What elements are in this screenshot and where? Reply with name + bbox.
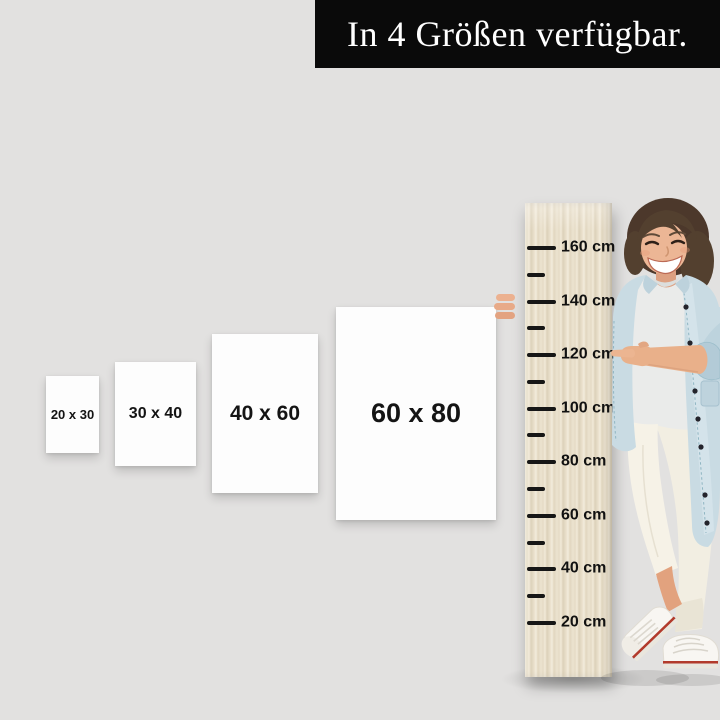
ankle bbox=[656, 566, 682, 612]
left-hand-fingers bbox=[494, 294, 515, 319]
size-label-30x40: 30 x 40 bbox=[129, 405, 182, 423]
size-label-20x30: 20 x 30 bbox=[51, 407, 94, 422]
sneaker-standing bbox=[663, 634, 719, 668]
product-size-guide: In 4 Größen verfügbar. 20 x 30 30 x 40 4… bbox=[0, 0, 720, 720]
size-label-40x60: 40 x 60 bbox=[230, 402, 300, 426]
jacket-pocket bbox=[701, 381, 719, 406]
size-label-60x80: 60 x 80 bbox=[371, 398, 461, 429]
availability-banner: In 4 Größen verfügbar. bbox=[315, 0, 720, 68]
feet-shadow bbox=[601, 670, 720, 686]
size-box-20x30: 20 x 30 bbox=[46, 376, 99, 453]
size-box-40x60: 40 x 60 bbox=[212, 334, 318, 493]
index-finger bbox=[611, 349, 635, 358]
size-box-60x80: 60 x 80 bbox=[336, 307, 496, 520]
size-box-30x40: 30 x 40 bbox=[115, 362, 196, 466]
availability-banner-text: In 4 Größen verfügbar. bbox=[347, 13, 688, 55]
model-photo bbox=[480, 195, 720, 700]
